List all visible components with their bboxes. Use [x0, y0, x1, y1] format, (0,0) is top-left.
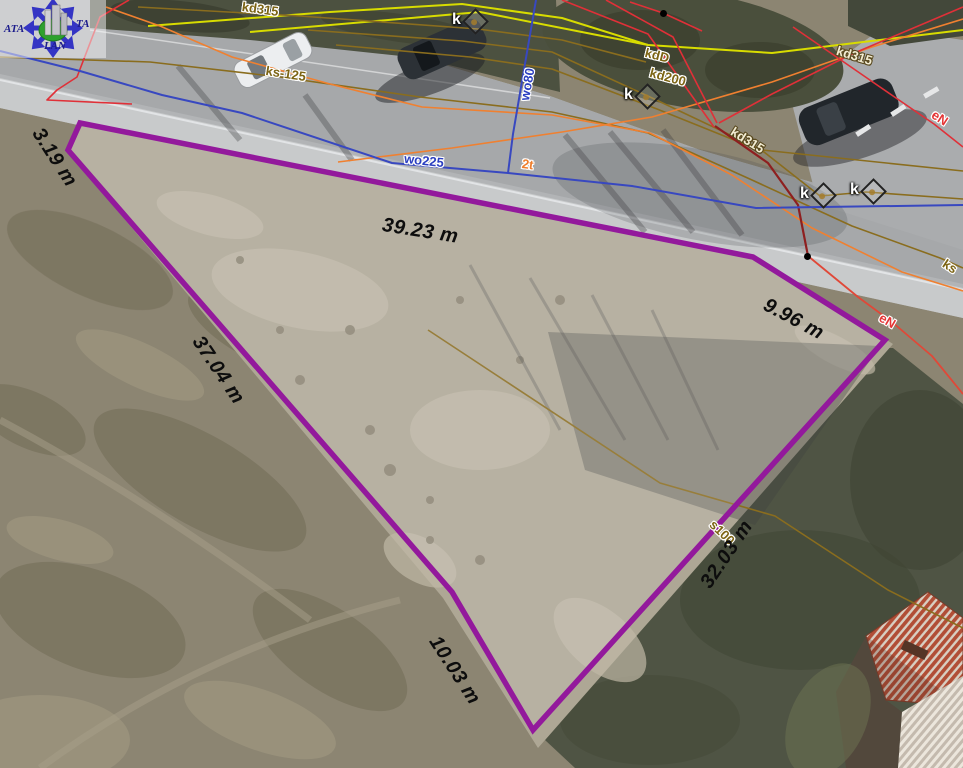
logo-text-bottom: LAN	[43, 40, 67, 52]
logo: ATA TA LAN	[0, 0, 112, 64]
parcel-outline	[68, 123, 885, 730]
manhole-k-icon: k	[850, 178, 886, 206]
k-letter: k	[800, 185, 809, 203]
logo-text-right: TA	[76, 18, 89, 30]
logo-text-left: ATA	[3, 23, 24, 35]
k-diamond	[462, 8, 489, 35]
utility-label-2t: 2t	[521, 156, 535, 172]
manhole-k-icon: k	[624, 83, 660, 111]
aerial-map-canvas: k k k k kd315 ks-125 wo80 wo225 2t kdD k…	[0, 0, 963, 768]
manhole-k-icon: k	[452, 8, 488, 36]
k-letter: k	[850, 181, 859, 199]
point-marker	[804, 253, 811, 260]
k-letter: k	[624, 86, 633, 104]
k-diamond	[810, 182, 837, 209]
point-marker	[660, 10, 667, 17]
manhole-k-icon: k	[800, 182, 836, 210]
k-letter: k	[452, 11, 461, 29]
k-diamond	[860, 178, 887, 205]
parcel-outline-svg	[0, 0, 963, 768]
k-diamond	[634, 83, 661, 110]
